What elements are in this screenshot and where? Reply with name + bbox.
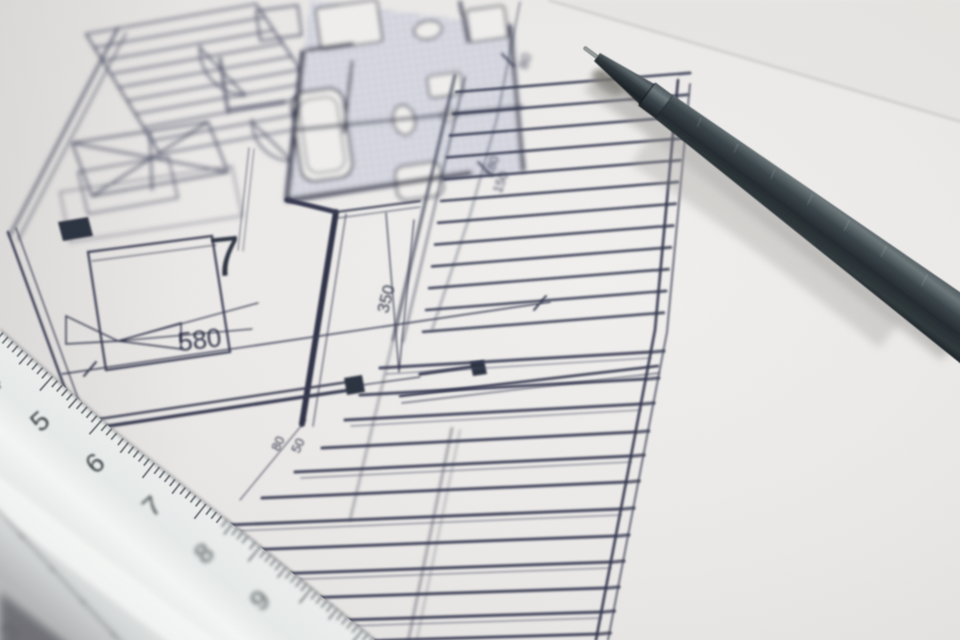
grain-overlay [0,0,960,640]
photo-canvas: 7 580 350 80 50 80 180 150 4 5 6 7 8 9 3 [0,0,960,640]
blueprint-photo: 7 580 350 80 50 80 180 150 4 5 6 7 8 9 3 [0,0,960,640]
